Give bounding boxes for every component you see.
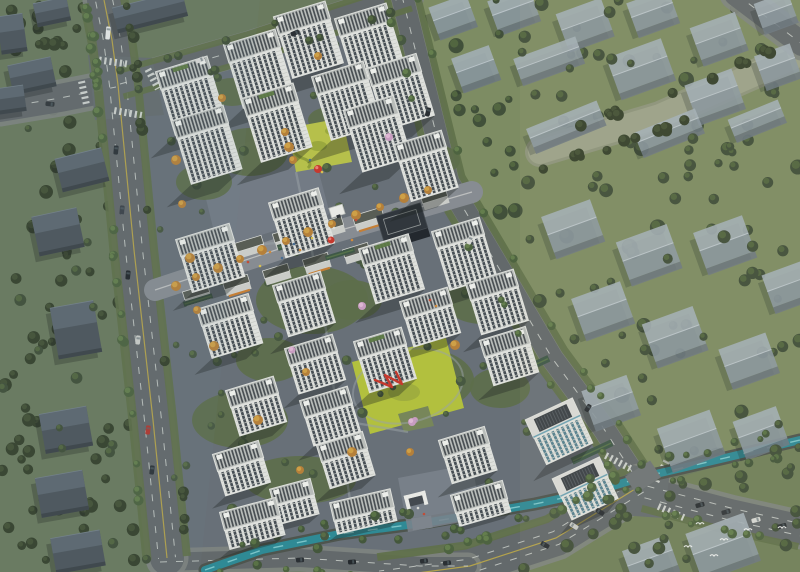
tree <box>347 447 357 457</box>
tree-highlight <box>289 347 293 351</box>
tree-highlight <box>285 143 291 149</box>
tree-highlight <box>400 509 404 513</box>
tree-highlight <box>314 567 319 572</box>
tree-highlight <box>321 520 325 524</box>
tree <box>441 531 449 539</box>
tree <box>471 105 479 113</box>
tree <box>387 18 396 27</box>
tree-highlight <box>451 341 457 347</box>
sphere <box>328 237 335 244</box>
tree <box>399 193 409 203</box>
tree <box>296 466 304 474</box>
tree-highlight <box>510 162 515 167</box>
tree-highlight <box>219 390 223 394</box>
tree <box>358 302 366 310</box>
tree <box>282 237 290 245</box>
tree-highlight <box>371 512 376 517</box>
pedestrian-dot <box>299 249 302 252</box>
tree-highlight <box>359 536 363 540</box>
tree-highlight <box>480 209 485 214</box>
tree <box>309 469 318 478</box>
tree <box>463 537 472 546</box>
pedestrian-dot <box>237 275 240 278</box>
tree <box>281 128 289 136</box>
tree <box>376 203 384 211</box>
tree-highlight <box>284 567 288 571</box>
tree-highlight <box>290 157 294 161</box>
tree-highlight <box>297 467 301 471</box>
tree-highlight <box>386 134 390 138</box>
tree <box>320 532 329 541</box>
tree <box>274 332 283 341</box>
tree-highlight <box>407 449 411 453</box>
tree <box>357 408 367 418</box>
tree-highlight <box>306 37 311 42</box>
tree-highlight <box>472 106 477 111</box>
tree-highlight <box>409 96 413 100</box>
pedestrian-dot <box>269 251 272 254</box>
tree-highlight <box>474 115 481 122</box>
tree-highlight <box>359 303 363 307</box>
render-canvas <box>0 0 800 572</box>
tree-highlight <box>425 187 429 191</box>
tree <box>385 133 393 141</box>
car <box>296 557 304 562</box>
tree <box>218 411 225 418</box>
pedestrian-dot <box>435 305 438 308</box>
sphere-highlight <box>315 166 318 169</box>
tree-highlight <box>395 536 400 541</box>
tree <box>498 296 505 303</box>
tree-highlight <box>458 527 462 531</box>
tree-highlight <box>499 297 503 301</box>
tree <box>359 535 367 543</box>
tree-highlight <box>483 535 489 541</box>
pedestrian-dot <box>293 243 296 246</box>
tree-highlight <box>311 92 315 96</box>
tree <box>322 163 331 172</box>
tree-highlight <box>377 204 381 208</box>
tree-highlight <box>314 544 319 549</box>
tree <box>298 526 305 533</box>
tree <box>399 508 407 516</box>
tree-highlight <box>451 525 456 530</box>
tree-highlight <box>477 535 482 540</box>
tree-highlight <box>387 9 392 14</box>
tree-highlight <box>442 532 447 537</box>
tree-highlight <box>409 419 413 423</box>
tree <box>402 68 411 77</box>
tree-highlight <box>397 36 403 42</box>
tree-highlight <box>253 561 258 566</box>
pedestrian-dot <box>333 227 336 230</box>
tree-highlight <box>317 34 321 38</box>
tree <box>453 104 465 116</box>
tree-highlight <box>303 369 307 373</box>
tree <box>479 362 487 370</box>
tree <box>505 96 512 103</box>
tree <box>482 137 492 147</box>
tree <box>450 340 460 350</box>
tree-highlight <box>240 542 243 545</box>
tree-highlight <box>388 19 393 24</box>
tree-highlight <box>258 246 264 252</box>
pedestrian-dot <box>351 239 354 242</box>
tree-highlight <box>254 416 260 422</box>
tree-highlight <box>275 333 280 338</box>
pedestrian-dot <box>321 171 324 174</box>
tree <box>408 418 416 426</box>
tree <box>473 114 486 127</box>
tree <box>328 220 336 228</box>
tree-highlight <box>509 204 517 212</box>
tree <box>457 527 465 535</box>
pedestrian-dot <box>259 265 262 268</box>
tree <box>444 544 454 554</box>
pedestrian-dot <box>309 159 312 162</box>
tree <box>250 538 260 548</box>
tree-highlight <box>455 105 462 112</box>
vehicle-windshield <box>300 558 302 562</box>
tree <box>253 560 262 569</box>
tree <box>302 368 310 376</box>
tree <box>351 210 361 220</box>
tree <box>253 415 263 425</box>
tree-highlight <box>480 363 484 367</box>
tree-highlight <box>323 164 328 169</box>
tree <box>271 20 278 27</box>
tree <box>424 186 432 194</box>
tree-highlight <box>283 238 287 242</box>
tree-highlight <box>494 103 501 110</box>
tree <box>493 204 508 219</box>
tree <box>482 535 492 545</box>
tree <box>479 209 488 218</box>
tree-highlight <box>352 211 358 217</box>
sphere-highlight <box>329 237 332 240</box>
tree <box>284 142 294 152</box>
tree <box>449 38 464 53</box>
tree <box>289 156 297 164</box>
tree <box>316 34 323 41</box>
tree <box>239 542 245 548</box>
tree-highlight <box>261 317 265 321</box>
tree-highlight <box>400 194 406 200</box>
tree-highlight <box>373 184 377 188</box>
tree <box>492 102 506 116</box>
tree-highlight <box>496 30 501 35</box>
pedestrian-dot <box>247 261 250 264</box>
tree-highlight <box>299 526 303 530</box>
tree <box>509 161 519 171</box>
tree <box>505 146 516 157</box>
tree <box>370 511 380 521</box>
warm-light-overlay <box>520 0 800 572</box>
tree <box>490 169 498 177</box>
tree-highlight <box>368 16 373 21</box>
tree-highlight <box>304 228 310 234</box>
tree-highlight <box>457 377 463 383</box>
pedestrian-dot <box>423 513 426 516</box>
aerial-site-render <box>0 0 800 572</box>
tree <box>305 36 313 44</box>
tree-highlight <box>483 138 488 143</box>
tree-highlight <box>272 20 276 24</box>
tree-highlight <box>510 255 514 259</box>
tree-highlight <box>282 129 286 133</box>
tree-highlight <box>506 146 512 152</box>
tree-highlight <box>403 69 408 74</box>
pedestrian-dot <box>417 507 420 510</box>
tree-highlight <box>310 470 315 475</box>
tree-highlight <box>237 256 241 260</box>
pedestrian-dot <box>355 219 358 222</box>
tree <box>510 255 518 263</box>
tree <box>313 543 323 553</box>
tree <box>281 458 289 466</box>
tree-highlight <box>516 330 520 334</box>
tree-highlight <box>450 39 458 47</box>
car <box>348 559 356 564</box>
tree-highlight <box>429 50 434 55</box>
tree-highlight <box>343 356 348 361</box>
vehicle-body <box>348 559 356 564</box>
pedestrian-dot <box>311 237 314 240</box>
tree <box>260 317 267 324</box>
tree <box>257 245 267 255</box>
tree-highlight <box>218 412 222 416</box>
tree-highlight <box>444 411 447 414</box>
tree-highlight <box>491 169 496 174</box>
tree-highlight <box>494 206 502 214</box>
tree <box>406 448 414 456</box>
tree-highlight <box>515 514 520 519</box>
tree <box>443 411 449 417</box>
red-sphere-sculpture <box>328 237 335 244</box>
tree <box>236 255 244 263</box>
tree <box>320 520 328 528</box>
tree <box>453 146 462 155</box>
tree <box>289 347 296 354</box>
pedestrian-dot <box>281 257 284 260</box>
tree <box>372 184 379 191</box>
tree <box>342 355 352 365</box>
tree-highlight <box>321 532 326 537</box>
tree <box>367 15 376 24</box>
tree <box>495 30 504 39</box>
tree-highlight <box>454 147 459 152</box>
vehicle-body <box>296 557 304 562</box>
vehicle-windshield <box>352 560 354 564</box>
tree-highlight <box>329 221 333 225</box>
tree-highlight <box>315 53 319 57</box>
tree <box>394 535 403 544</box>
tree <box>386 8 396 18</box>
tree-highlight <box>358 408 364 414</box>
tree <box>428 49 437 58</box>
tree-highlight <box>282 459 286 463</box>
tree-highlight <box>348 448 354 454</box>
tree-highlight <box>251 539 256 544</box>
tree-highlight <box>464 538 469 543</box>
tree <box>314 52 322 60</box>
tree <box>456 376 466 386</box>
tree-highlight <box>445 545 451 551</box>
tree-highlight <box>506 96 510 100</box>
pedestrian-dot <box>429 299 432 302</box>
tree <box>303 227 313 237</box>
tree <box>408 95 415 102</box>
